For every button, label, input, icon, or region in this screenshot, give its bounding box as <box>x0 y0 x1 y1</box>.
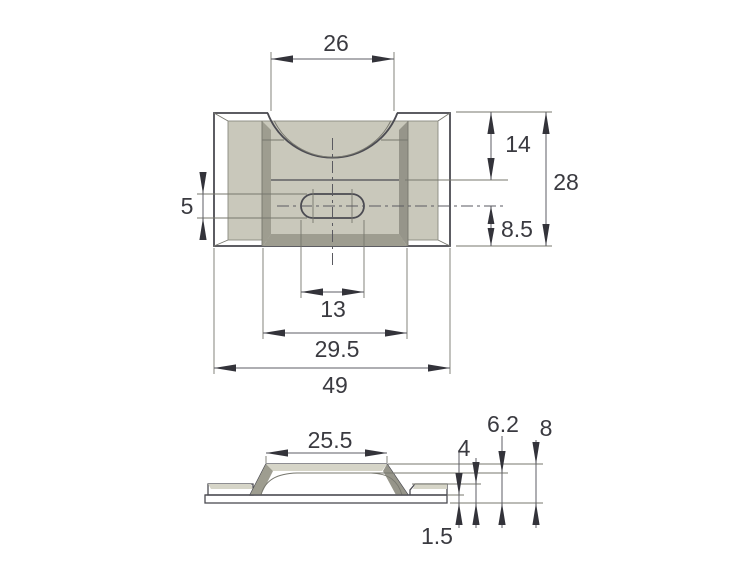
dim-label-8-5: 8.5 <box>501 216 533 242</box>
dim-label-25-5: 25.5 <box>308 427 353 453</box>
dim-label-13: 13 <box>320 296 346 322</box>
dim-label-1-5: 1.5 <box>421 523 453 549</box>
dim-base-lip-thickness: 1.5 <box>421 450 463 549</box>
saddle-dome-profile <box>261 473 402 495</box>
recess-bottom-slope <box>263 234 407 246</box>
dim-label-5: 5 <box>181 193 194 219</box>
dim-label-14: 14 <box>505 131 531 157</box>
left-end-pad-top <box>208 484 253 489</box>
dim-label-26: 26 <box>323 30 349 56</box>
dim-total-height: 8 <box>532 415 552 528</box>
dim-boss-top-width: 25.5 <box>266 427 387 463</box>
dim-cutout-width: 26 <box>271 30 394 111</box>
dim-total-width: 49 <box>214 248 450 398</box>
dim-label-8: 8 <box>540 415 553 441</box>
side-view-dimensions: 25.5 1.5 4 6.2 8 <box>266 411 552 549</box>
dim-label-28: 28 <box>553 169 579 195</box>
drawing-canvas: 26 14 28 8.5 <box>0 0 750 580</box>
dim-slot-center-to-bottom: 8.5 <box>488 206 533 246</box>
cutout-opening-gap <box>268 108 397 114</box>
side-view <box>205 464 447 503</box>
boss-right-slope <box>383 464 408 495</box>
dim-label-4: 4 <box>458 435 471 461</box>
dim-label-49: 49 <box>322 372 348 398</box>
boss-top-face <box>266 464 387 471</box>
boss-left-slope <box>250 464 273 495</box>
base-slab <box>205 495 447 503</box>
top-view <box>214 108 505 266</box>
dim-label-6-2: 6.2 <box>487 411 519 437</box>
right-end-pad-top <box>413 484 447 489</box>
dimension-drawing: 26 14 28 8.5 <box>0 0 750 580</box>
dim-saddle-height: 6.2 <box>487 411 519 528</box>
dim-label-29-5: 29.5 <box>315 336 360 362</box>
